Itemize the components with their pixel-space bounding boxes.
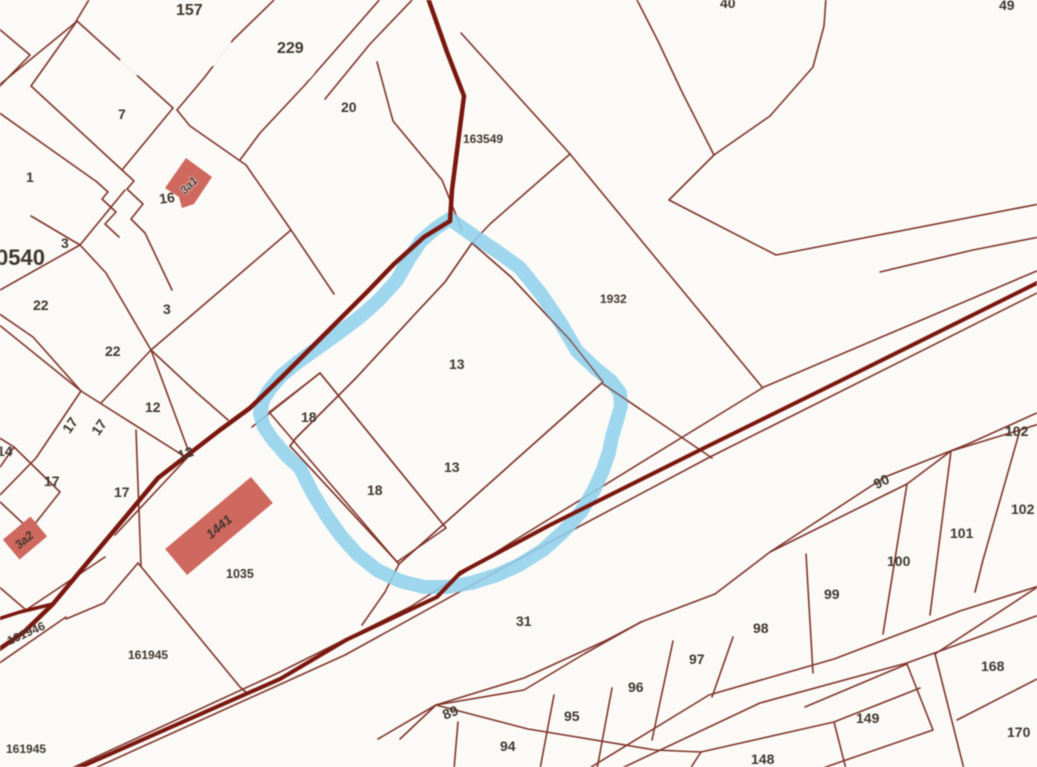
svg-text:149: 149: [856, 710, 880, 726]
svg-text:40: 40: [720, 0, 736, 11]
svg-text:22: 22: [105, 343, 121, 359]
svg-text:1: 1: [26, 169, 34, 185]
svg-text:99: 99: [824, 586, 840, 602]
svg-text:17: 17: [44, 473, 60, 489]
svg-text:157: 157: [176, 2, 203, 19]
svg-text:1035: 1035: [226, 567, 254, 581]
svg-text:7: 7: [118, 106, 126, 122]
svg-text:3: 3: [163, 301, 171, 317]
svg-text:22: 22: [33, 297, 49, 313]
svg-text:102: 102: [1011, 501, 1035, 517]
svg-text:102: 102: [1005, 423, 1029, 439]
svg-text:95: 95: [564, 708, 580, 724]
svg-text:148: 148: [751, 751, 775, 767]
svg-text:229: 229: [277, 40, 304, 57]
svg-text:96: 96: [628, 679, 644, 695]
svg-text:94: 94: [500, 738, 516, 754]
svg-text:18: 18: [301, 409, 317, 425]
svg-text:12: 12: [145, 399, 161, 415]
svg-text:20: 20: [341, 99, 357, 115]
svg-text:100: 100: [887, 553, 911, 569]
svg-text:168: 168: [981, 658, 1005, 674]
svg-text:98: 98: [753, 620, 769, 636]
svg-text:97: 97: [689, 651, 705, 667]
svg-text:161945: 161945: [128, 648, 168, 662]
svg-text:14: 14: [0, 443, 13, 459]
svg-text:101: 101: [950, 525, 974, 541]
svg-text:18: 18: [367, 482, 383, 498]
svg-text:31: 31: [516, 613, 532, 629]
svg-text:0540: 0540: [0, 245, 45, 270]
svg-text:13: 13: [444, 459, 460, 475]
svg-text:161945: 161945: [6, 742, 46, 756]
svg-text:163549: 163549: [463, 132, 503, 146]
svg-text:17: 17: [114, 484, 130, 500]
svg-text:16: 16: [158, 189, 176, 207]
svg-text:13: 13: [449, 356, 465, 372]
svg-text:49: 49: [999, 0, 1015, 13]
svg-text:3: 3: [61, 235, 69, 251]
svg-text:1932: 1932: [600, 292, 627, 306]
svg-text:170: 170: [1007, 724, 1031, 740]
